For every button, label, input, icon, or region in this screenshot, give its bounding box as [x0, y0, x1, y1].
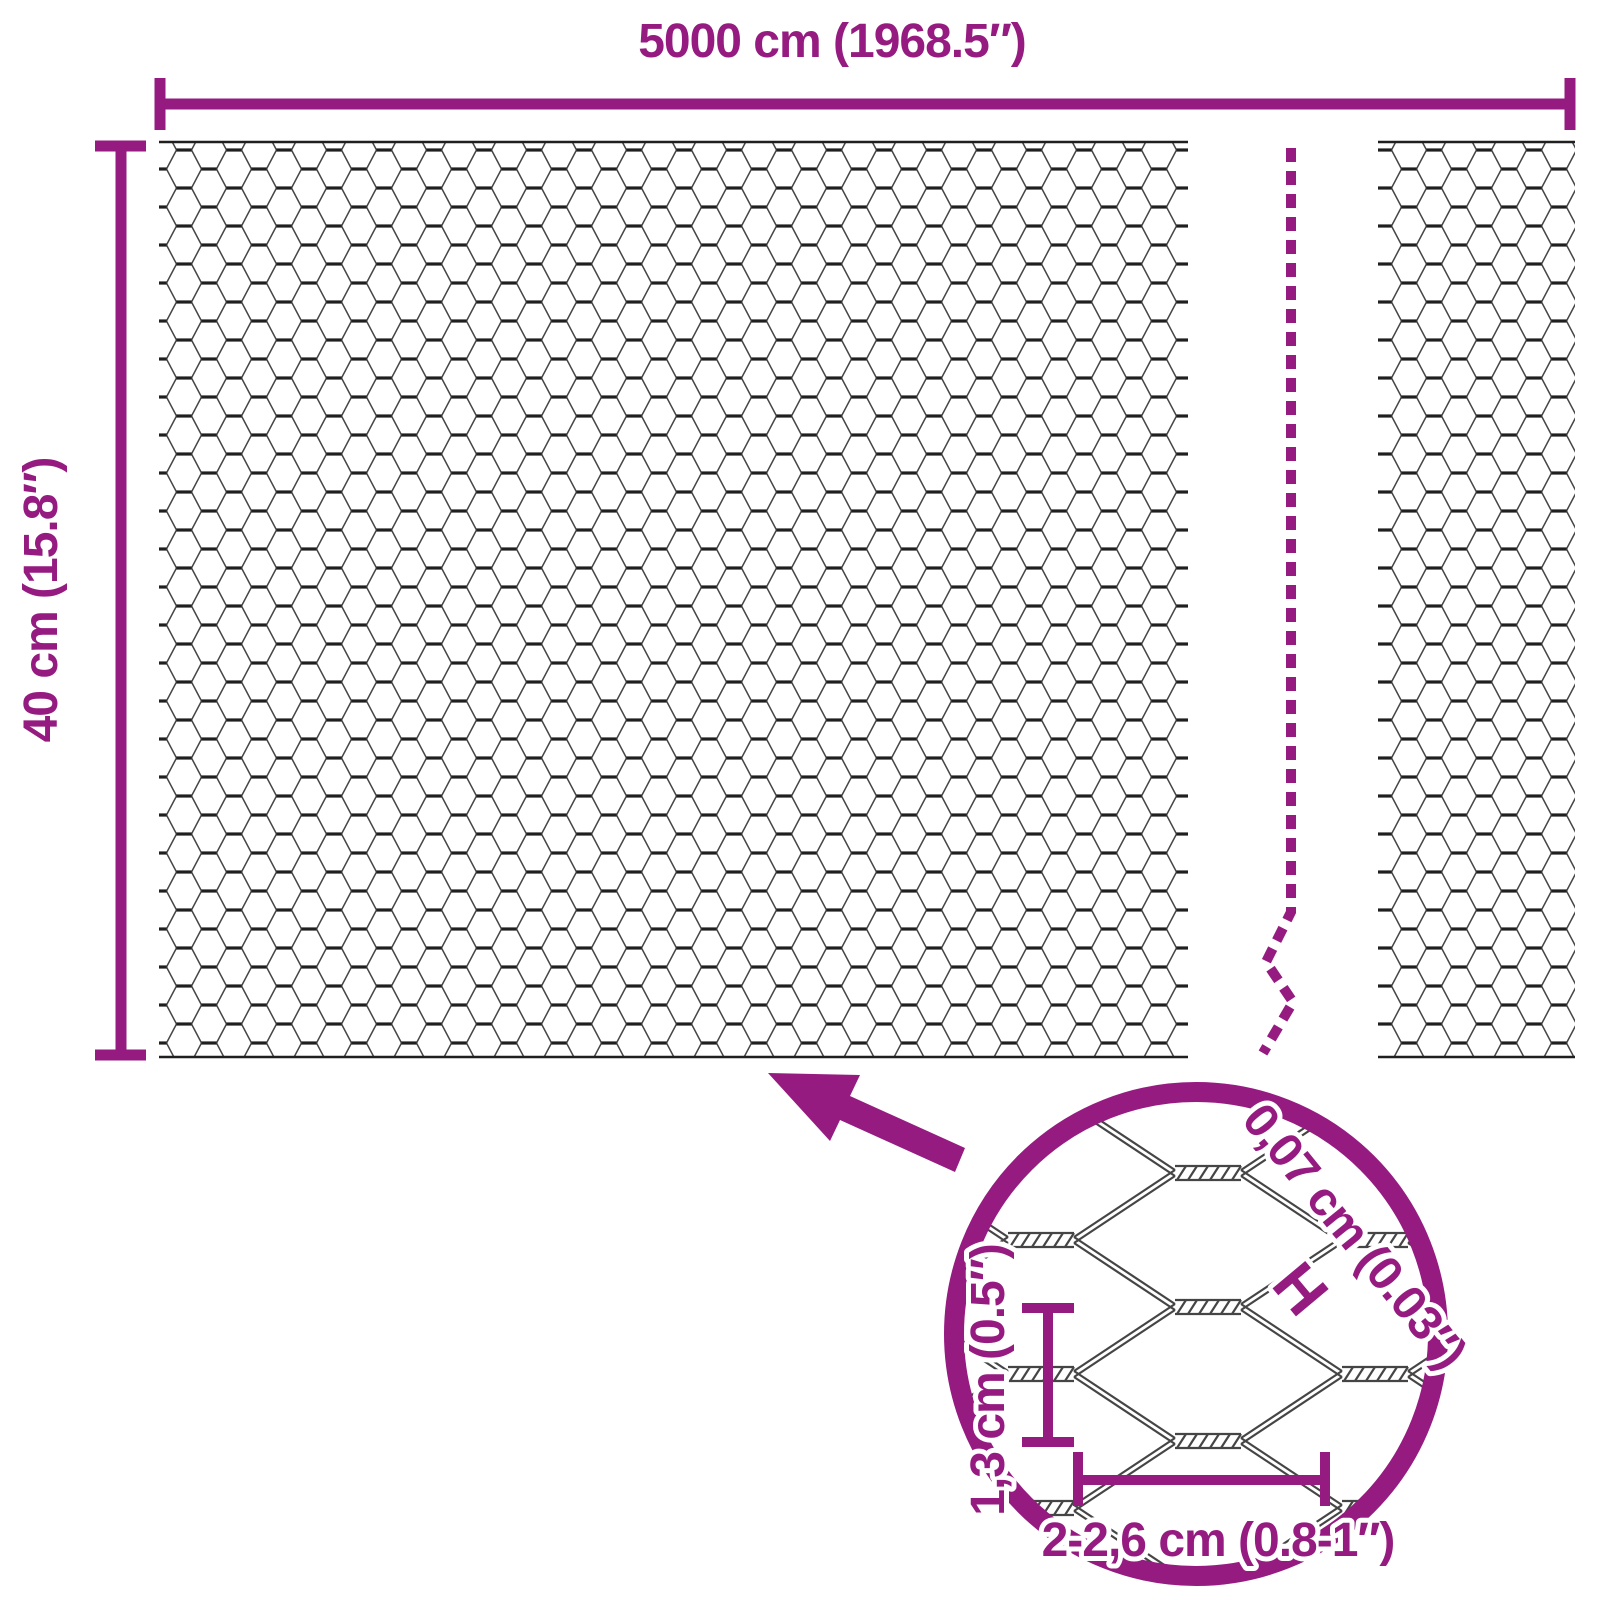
length-dimension-label: 5000 cm (1968.5″) — [638, 15, 1026, 68]
mesh-panel-main-fill — [159, 141, 1188, 1058]
mesh-panel-strip — [1378, 141, 1575, 1058]
height-dimension: 40 cm (15.8″) — [15, 146, 146, 1055]
height-dimension-label: 40 cm (15.8″) — [15, 458, 68, 743]
mesh-width-label: 2-2,6 cm (0.8-1″) — [1042, 1514, 1395, 1567]
diagram-canvas: 5000 cm (1968.5″) 40 cm (15.8″) — [0, 0, 1600, 1600]
length-dimension: 5000 cm (1968.5″) — [160, 15, 1570, 130]
mesh-panel-strip-fill — [1378, 141, 1575, 1058]
length-break-dashed-line — [1263, 148, 1293, 1053]
mesh-height-label: 1,3 cm (0.5″) — [962, 1244, 1015, 1515]
zoom-arrow-icon — [768, 1073, 965, 1172]
product-dimension-diagram: 5000 cm (1968.5″) 40 cm (15.8″) — [0, 0, 1600, 1600]
magnifier: H 0,07 cm (0.03″) 1,3 cm (0.5″) 2-2,6 cm… — [944, 1082, 1476, 1586]
mesh-panel-main — [159, 141, 1188, 1058]
